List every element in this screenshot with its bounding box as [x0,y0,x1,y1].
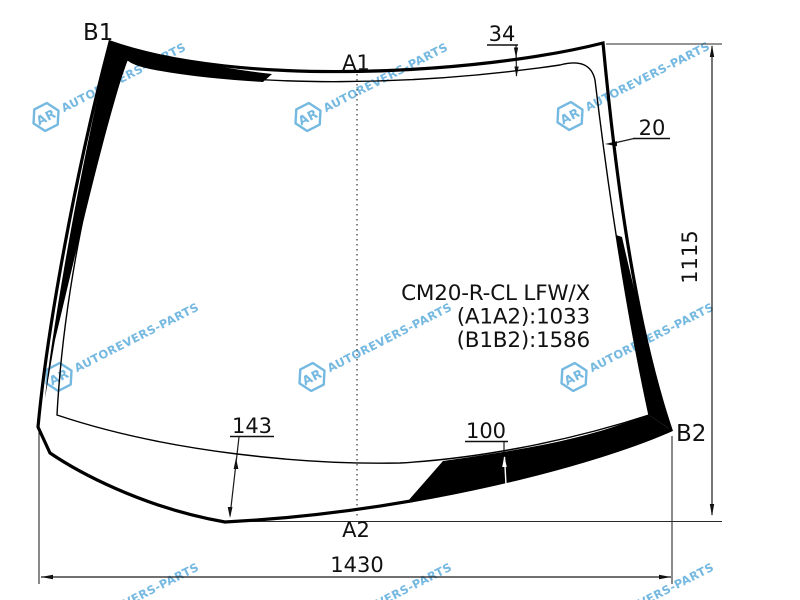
label-a2: A2 [342,518,370,542]
label-b2: B2 [676,421,706,447]
dimension-layer [39,44,722,584]
dim-value-100: 100 [466,419,506,443]
watermark-layer: AR AUTOREVERS-PARTS [28,34,718,600]
watermark [556,555,718,600]
dim-value-20: 20 [639,116,666,140]
part-dim-b1b2: (B1B2):1586 [457,328,590,353]
part-dim-a1a2: (A1A2):1033 [457,305,590,330]
dim-value-1430: 1430 [330,553,383,577]
dim-height-1115 [710,45,714,516]
ceramic-band-bottom [408,415,671,501]
dim-bottom-left-143 [228,437,274,519]
watermark [41,555,203,600]
watermark [41,295,203,394]
labels-layer: B1 A1 B2 A2 34 20 143 100 1430 1115 CM20… [83,20,706,577]
label-b1: B1 [83,20,113,46]
dim-value-34: 34 [489,22,516,46]
label-a1: A1 [342,51,370,75]
watermark [290,35,452,134]
dim-value-1115: 1115 [678,230,702,283]
watermark [294,295,456,394]
part-code: CM20-R-CL LFW/X [401,281,590,306]
windshield-diagram: AR AUTOREVERS-PARTS [0,0,800,600]
dim-value-143: 143 [232,414,272,438]
windshield-diagram-image: AR AUTOREVERS-PARTS [0,0,800,600]
